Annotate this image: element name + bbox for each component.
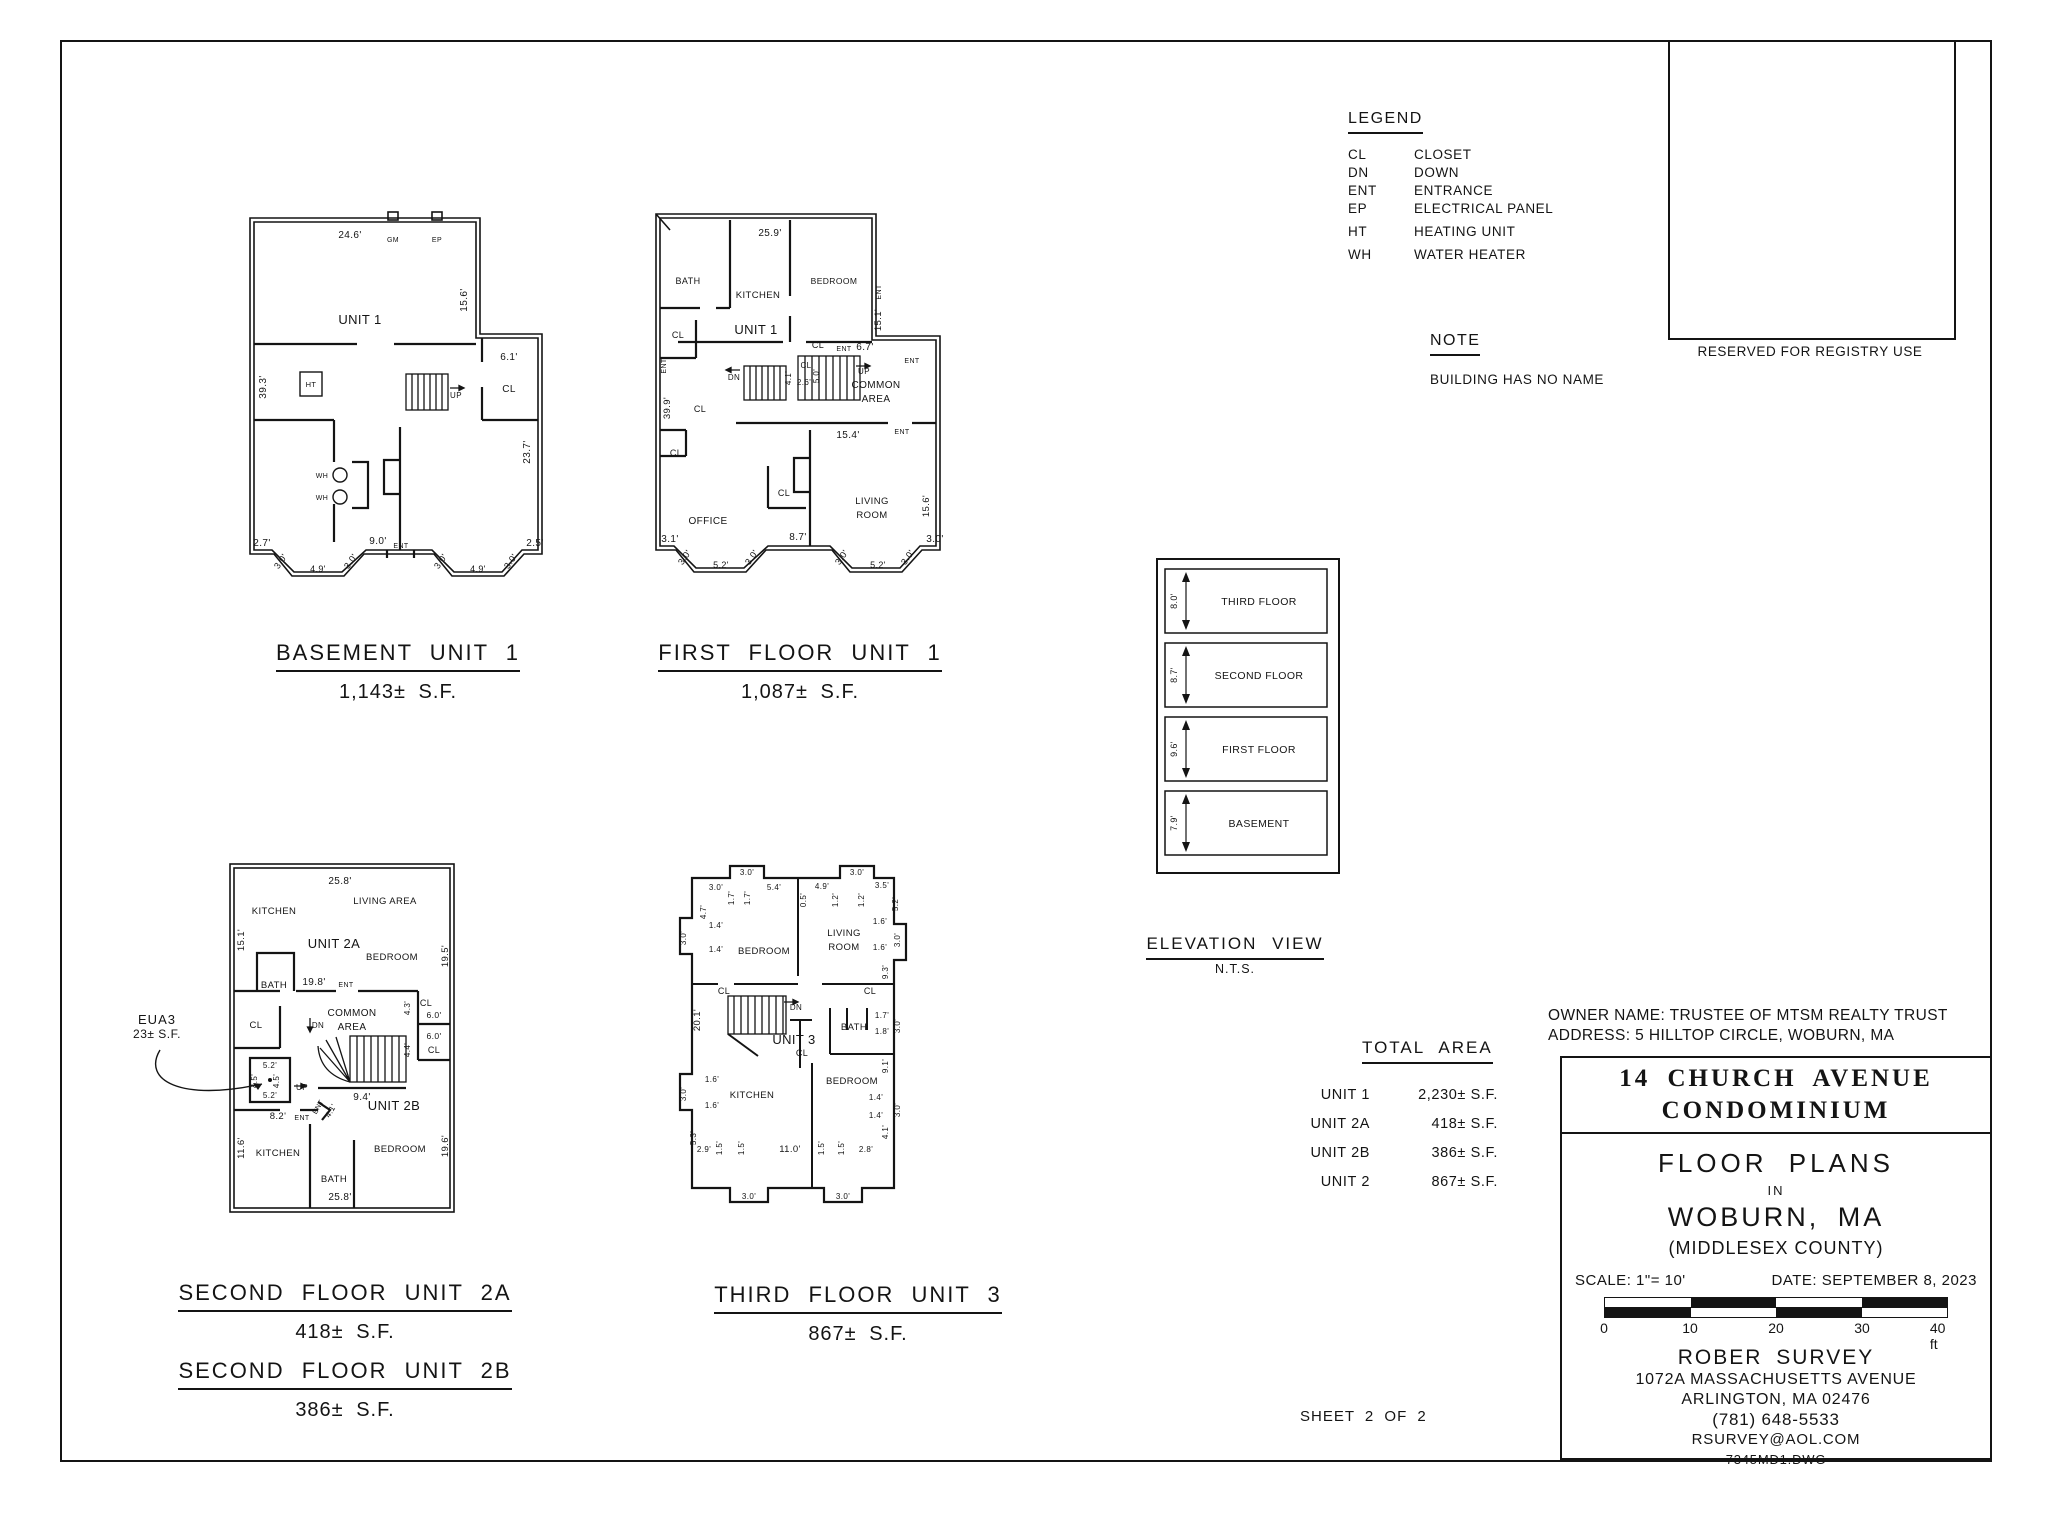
plan-label: 4.4' <box>403 1043 412 1057</box>
plan-label: 2.6' <box>797 378 811 387</box>
scale-bar-top <box>1604 1297 1948 1308</box>
plan-label: 6.1' <box>500 352 517 363</box>
plan-label: 19.8' <box>302 977 325 988</box>
plan-label: ROOM <box>828 942 859 953</box>
plan-label: 8.2' <box>270 1111 287 1122</box>
plan-label: 8.7' <box>789 532 806 543</box>
plan-label: UNIT 2A <box>308 936 360 951</box>
plan-label: CL <box>428 1045 440 1055</box>
plan-label: ENT <box>661 358 668 374</box>
plan-label: 2.9' <box>697 1145 711 1154</box>
plan-label: CL <box>420 998 432 1008</box>
plan-label: ENT <box>876 284 883 300</box>
plan-label: 15.6' <box>921 495 932 517</box>
plan-label: BEDROOM <box>366 952 418 963</box>
plan-label: 3.0' <box>709 883 723 892</box>
elevation-view: 8.0' THIRD FLOOR 8.7' SECOND FLOOR 9.6' … <box>1156 558 1340 874</box>
plan-label: 15.1' <box>873 309 884 331</box>
plan-label: CL <box>670 448 682 458</box>
note-title: NOTE <box>1430 332 1480 356</box>
total-area-row: UNIT 2A 418± S.F. <box>1282 1109 1498 1138</box>
plan-label: AREA <box>862 394 891 405</box>
plan-label: UP <box>450 391 462 400</box>
plan-label: 3.0' <box>850 868 864 877</box>
plan-label: 5.2' <box>891 897 900 911</box>
plan-label: DN <box>790 1003 802 1012</box>
eua3-leader-arrow <box>140 1044 274 1104</box>
plan-label: COMMON <box>327 1008 376 1019</box>
legend-item: WH WATER HEATER <box>1348 246 1608 264</box>
plan-label: 9.3' <box>881 965 890 979</box>
legend: LEGEND CL CLOSET DN DOWN ENT ENTRANCE EP… <box>1348 110 1608 264</box>
surveyor-phone: (781) 648-5533 <box>1562 1410 1990 1430</box>
doc-city: WOBURN, MA <box>1562 1202 1990 1233</box>
plan-label: BATH <box>261 980 287 991</box>
basement-floor-plan: 24.6'GMEPUNIT 115.6'39.3'6.1'CLHTUPWHWH2… <box>242 212 552 592</box>
scale-date-row: SCALE: 1"= 10' DATE: SEPTEMBER 8, 2023 <box>1562 1272 1990 1289</box>
plan-label: 1.2' <box>857 893 866 907</box>
plan-label: 39.3' <box>258 375 269 398</box>
plan-label: 5.3' <box>689 1131 698 1145</box>
plan-label: CL <box>718 986 730 996</box>
plan-label: LIVING <box>855 496 889 507</box>
plan-label: 19.5' <box>440 945 451 967</box>
plan-label: 3.0' <box>342 552 359 571</box>
plan-label: 1.8' <box>875 1027 889 1036</box>
svg-text:SECOND FLOOR: SECOND FLOOR <box>1215 670 1304 682</box>
plan-label: 1.5' <box>737 1141 746 1155</box>
plan-label: ROOM <box>856 510 887 521</box>
plan-label: BEDROOM <box>738 946 790 957</box>
doc-county: (MIDDLESEX COUNTY) <box>1562 1238 1990 1259</box>
scale-bar-bottom <box>1604 1308 1948 1318</box>
legend-item: ENT ENTRANCE <box>1348 182 1608 200</box>
surveyor-address2: ARLINGTON, MA 02476 <box>1562 1390 1990 1410</box>
plan-label: 1.5' <box>817 1141 826 1155</box>
plan-label: ENT <box>836 346 852 353</box>
plan-label: 3.0' <box>899 548 916 567</box>
elevation-row-basement: 7.9' BASEMENT <box>1164 790 1328 856</box>
plan-label: 3.1' <box>661 534 678 545</box>
plan-label: UNIT 2B <box>368 1098 420 1113</box>
plan-label: 4.3' <box>403 1001 412 1015</box>
plan-label: KITCHEN <box>256 1148 301 1159</box>
plan-label: CL <box>672 330 684 340</box>
plan-label: 5.4' <box>767 883 781 892</box>
basement-exterior-walls <box>250 212 542 576</box>
plan-label: GM <box>387 237 399 244</box>
plan-label: 11.6' <box>236 1137 247 1159</box>
plan-label: 1.7' <box>743 891 752 905</box>
plan-label: 1.4' <box>709 921 723 930</box>
plan-label: 4.1' <box>784 371 793 385</box>
second-title-block: SECOND FLOOR UNIT 2A 418± S.F. SECOND FL… <box>140 1280 550 1422</box>
total-area-row: UNIT 1 2,230± S.F. <box>1282 1080 1498 1109</box>
plan-label: WH <box>316 495 328 502</box>
plan-label: ENT <box>338 982 354 989</box>
plan-label: ENT <box>294 1115 310 1122</box>
plan-label: 6.0' <box>426 1010 441 1020</box>
plan-label: 5.2' <box>870 560 886 570</box>
plan-label: 15.6' <box>459 288 470 311</box>
plan-label: ENT <box>393 543 409 550</box>
third-title: THIRD FLOOR UNIT 3 <box>714 1282 1002 1314</box>
plan-label: 4.9' <box>470 564 486 574</box>
plan-label: BEDROOM <box>826 1076 878 1087</box>
plan-label: 4.7' <box>699 905 708 919</box>
plan-label: CL <box>694 404 706 414</box>
second-floor-plan: 25.8'KITCHENLIVING AREA15.1'UNIT 2ABEDRO… <box>222 858 462 1220</box>
owner-info: OWNER NAME: TRUSTEE OF MTSM REALTY TRUST… <box>1548 1006 1948 1046</box>
plan-label: 3.0' <box>502 552 519 571</box>
plan-label: UP <box>858 367 870 376</box>
svg-text:7.9': 7.9' <box>1169 815 1179 831</box>
note-text: BUILDING HAS NO NAME <box>1430 372 1750 387</box>
plan-label: 2.7' <box>253 538 270 549</box>
plan-label: LIVING AREA <box>353 896 417 907</box>
plan-label: 3.5' <box>875 881 889 890</box>
plan-label: CL <box>796 1048 808 1058</box>
plan-label: 5.2' <box>713 560 729 570</box>
plan-label: ENT <box>894 429 910 436</box>
second-2a-area: 418± S.F. <box>140 1321 550 1344</box>
plan-label: 3.0' <box>893 933 902 947</box>
plan-label: 15.4' <box>836 430 859 441</box>
plan-label: UNIT 1 <box>338 312 381 327</box>
plan-label: HT <box>306 380 317 389</box>
plan-label: 3.0' <box>679 931 688 945</box>
plan-label: 4.9' <box>815 882 829 891</box>
svg-text:8.0': 8.0' <box>1169 593 1179 609</box>
elevation-row-third: 8.0' THIRD FLOOR <box>1164 568 1328 634</box>
plan-label: BATH <box>841 1022 867 1033</box>
svg-text:BASEMENT: BASEMENT <box>1229 818 1290 830</box>
plan-label: 1.4' <box>869 1111 883 1120</box>
elevation-title-block: ELEVATION VIEW N.T.S. <box>1120 934 1350 976</box>
plan-label: CL <box>864 986 876 996</box>
plan-label: DN <box>728 373 740 382</box>
plan-label: 11.0' <box>779 1144 801 1155</box>
plan-label: 0.5' <box>799 893 808 907</box>
elevation-row-second: 8.7' SECOND FLOOR <box>1164 642 1328 708</box>
basement-area: 1,143± S.F. <box>238 681 558 704</box>
plan-label: 3.0' <box>742 1192 756 1201</box>
plan-label: 39.9' <box>662 397 673 419</box>
first-floor-area: 1,087± S.F. <box>640 681 960 704</box>
plan-label: DN <box>312 1021 324 1030</box>
plan-label: 2.8' <box>859 1145 873 1154</box>
plan-label: 25.8' <box>328 1192 351 1203</box>
plan-label: 4.9' <box>310 564 326 574</box>
second-2a-title: SECOND FLOOR UNIT 2A <box>178 1280 511 1312</box>
plan-label: 1.4' <box>869 1093 883 1102</box>
plan-label: CL <box>800 361 811 370</box>
plan-label: 1.2' <box>831 893 840 907</box>
plan-label: 9.1' <box>881 1059 890 1073</box>
plan-label: CL <box>502 384 516 395</box>
plan-label: 24.6' <box>338 230 361 241</box>
date-label: DATE: SEPTEMBER 8, 2023 <box>1772 1272 1977 1289</box>
plan-label: 6.0' <box>426 1031 441 1041</box>
legend-item: HT HEATING UNIT <box>1348 223 1608 241</box>
plan-label: 9.0' <box>369 536 386 547</box>
elevation-row-first: 9.6' FIRST FLOOR <box>1164 716 1328 782</box>
plan-label: 3.0' <box>679 1087 688 1101</box>
plan-label: 20.1' <box>692 1009 703 1031</box>
total-area-table: UNIT 1 2,230± S.F. UNIT 2A 418± S.F. UNI… <box>1282 1080 1498 1196</box>
plan-label: UP <box>296 1083 308 1092</box>
registry-box <box>1668 40 1956 340</box>
legend-title: LEGEND <box>1348 110 1423 134</box>
plan-label: 2.5' <box>526 538 543 549</box>
basement-title-block: BASEMENT UNIT 1 1,143± S.F. <box>238 640 558 704</box>
surveyor-name: ROBER SURVEY <box>1562 1346 1990 1370</box>
third-area: 867± S.F. <box>668 1323 1048 1346</box>
plan-label: 1.6' <box>705 1101 719 1110</box>
plan-label: KITCHEN <box>252 906 297 917</box>
first-floor-plan: 25.9'BATHKITCHENBEDROOMENT15.1'UNIT 1CLC… <box>648 208 948 596</box>
plan-label: EP <box>432 237 442 244</box>
scale-bar: 0 10 20 30 40 ft <box>1604 1297 1948 1336</box>
plan-label: CL <box>812 340 824 350</box>
plan-label: BEDROOM <box>374 1144 426 1155</box>
surveyor-address1: 1072A MASSACHUSETTS AVENUE <box>1562 1370 1990 1390</box>
plan-label: 1.6' <box>705 1075 719 1084</box>
plan-label: CL <box>778 488 790 498</box>
svg-text:8.7': 8.7' <box>1169 667 1179 683</box>
first-title-block: FIRST FLOOR UNIT 1 1,087± S.F. <box>640 640 960 704</box>
legend-item: CL CLOSET <box>1348 146 1608 164</box>
plan-label: 1.7' <box>875 1011 889 1020</box>
svg-text:FIRST FLOOR: FIRST FLOOR <box>1222 744 1296 756</box>
svg-text:9.6': 9.6' <box>1169 741 1179 757</box>
basement-title: BASEMENT UNIT 1 <box>276 640 520 672</box>
plan-label: 3.0' <box>743 548 760 567</box>
plan-label: 15.1' <box>236 929 247 951</box>
note: NOTE BUILDING HAS NO NAME <box>1430 332 1750 387</box>
plan-label: 25.8' <box>328 876 351 887</box>
plan-label: 1.7' <box>727 891 736 905</box>
plan-label: 1.5' <box>715 1141 724 1155</box>
second-2b-title: SECOND FLOOR UNIT 2B <box>178 1358 511 1390</box>
owner-address: ADDRESS: 5 HILLTOP CIRCLE, WOBURN, MA <box>1548 1026 1948 1046</box>
owner-name: OWNER NAME: TRUSTEE OF MTSM REALTY TRUST <box>1548 1006 1948 1026</box>
plan-label: 1.5' <box>837 1141 846 1155</box>
plan-label: AREA <box>338 1022 367 1033</box>
first-floor-title: FIRST FLOOR UNIT 1 <box>658 640 941 672</box>
total-area-row: UNIT 2 867± S.F. <box>1282 1167 1498 1196</box>
scale-label: SCALE: 1"= 10' <box>1575 1272 1686 1289</box>
plan-label: OFFICE <box>688 516 727 527</box>
total-area-row: UNIT 2B 386± S.F. <box>1282 1138 1498 1167</box>
plan-label: BATH <box>676 276 701 286</box>
third-floor-plan: 3.0'3.0'3.0'1.7'1.7'5.4'0.5'4.9'1.2'1.2'… <box>672 858 912 1216</box>
condo-name: 14 CHURCH AVENUE CONDOMINIUM <box>1562 1058 1990 1134</box>
plan-label: 3.0' <box>893 1019 902 1033</box>
elevation-subtitle: N.T.S. <box>1120 962 1350 976</box>
plan-label: 6.7' <box>856 342 873 353</box>
plan-label: 1.6' <box>873 917 887 926</box>
plan-label: 4.1' <box>881 1125 890 1139</box>
plan-label: 1.6' <box>873 943 887 952</box>
plan-label: BATH <box>321 1174 347 1185</box>
third-stairs <box>728 996 798 1034</box>
plan-label: 25.9' <box>758 228 781 239</box>
plan-label: 23.7' <box>522 440 533 463</box>
legend-item: EP ELECTRICAL PANEL <box>1348 200 1608 218</box>
plan-label: COMMON <box>851 380 900 391</box>
title-block: 14 CHURCH AVENUE CONDOMINIUM FLOOR PLANS… <box>1560 1056 1992 1460</box>
surveyor-email: RSURVEY@AOL.COM <box>1562 1430 1990 1450</box>
plan-label: BEDROOM <box>811 276 858 286</box>
plan-label: ENT <box>904 358 920 365</box>
doc-type: FLOOR PLANS <box>1562 1148 1990 1179</box>
plan-label: WH <box>316 473 328 480</box>
basement-fixtures <box>300 372 347 504</box>
total-area-title: TOTAL AREA <box>1362 1038 1493 1064</box>
plan-label: LIVING <box>827 928 861 939</box>
plan-label: KITCHEN <box>730 1090 775 1101</box>
plan-label: CL <box>250 1020 263 1031</box>
elevation-title: ELEVATION VIEW <box>1146 934 1323 960</box>
plan-label: UNIT 1 <box>734 322 777 337</box>
basement-interior-walls <box>254 338 538 558</box>
plan-label: 3.0' <box>893 1103 902 1117</box>
legend-item: DN DOWN <box>1348 164 1608 182</box>
drawing-file: 7345MD1.DWG <box>1562 1450 1990 1470</box>
plan-label: 19.6' <box>440 1135 451 1157</box>
plan-label: KITCHEN <box>736 290 781 301</box>
svg-text:THIRD FLOOR: THIRD FLOOR <box>1221 596 1297 608</box>
eua3-callout: EUA3 23± S.F. <box>112 1012 202 1041</box>
plan-label: 3.0' <box>836 1192 850 1201</box>
plan-label: 3.0' <box>740 868 754 877</box>
third-title-block: THIRD FLOOR UNIT 3 867± S.F. <box>668 1282 1048 1346</box>
plan-label: 4.1' <box>323 1102 338 1119</box>
plan-label: 5.0' <box>812 369 821 383</box>
plan-label: UNIT 3 <box>772 1032 815 1047</box>
plan-label: 3.0' <box>926 534 943 545</box>
plan-label: 1.4' <box>709 945 723 954</box>
second-2b-area: 386± S.F. <box>140 1399 550 1422</box>
sheet-number: SHEET 2 OF 2 <box>1300 1408 1427 1425</box>
doc-in: IN <box>1562 1183 1990 1198</box>
scale-ticks: 0 10 20 30 40 ft <box>1604 1318 1948 1336</box>
